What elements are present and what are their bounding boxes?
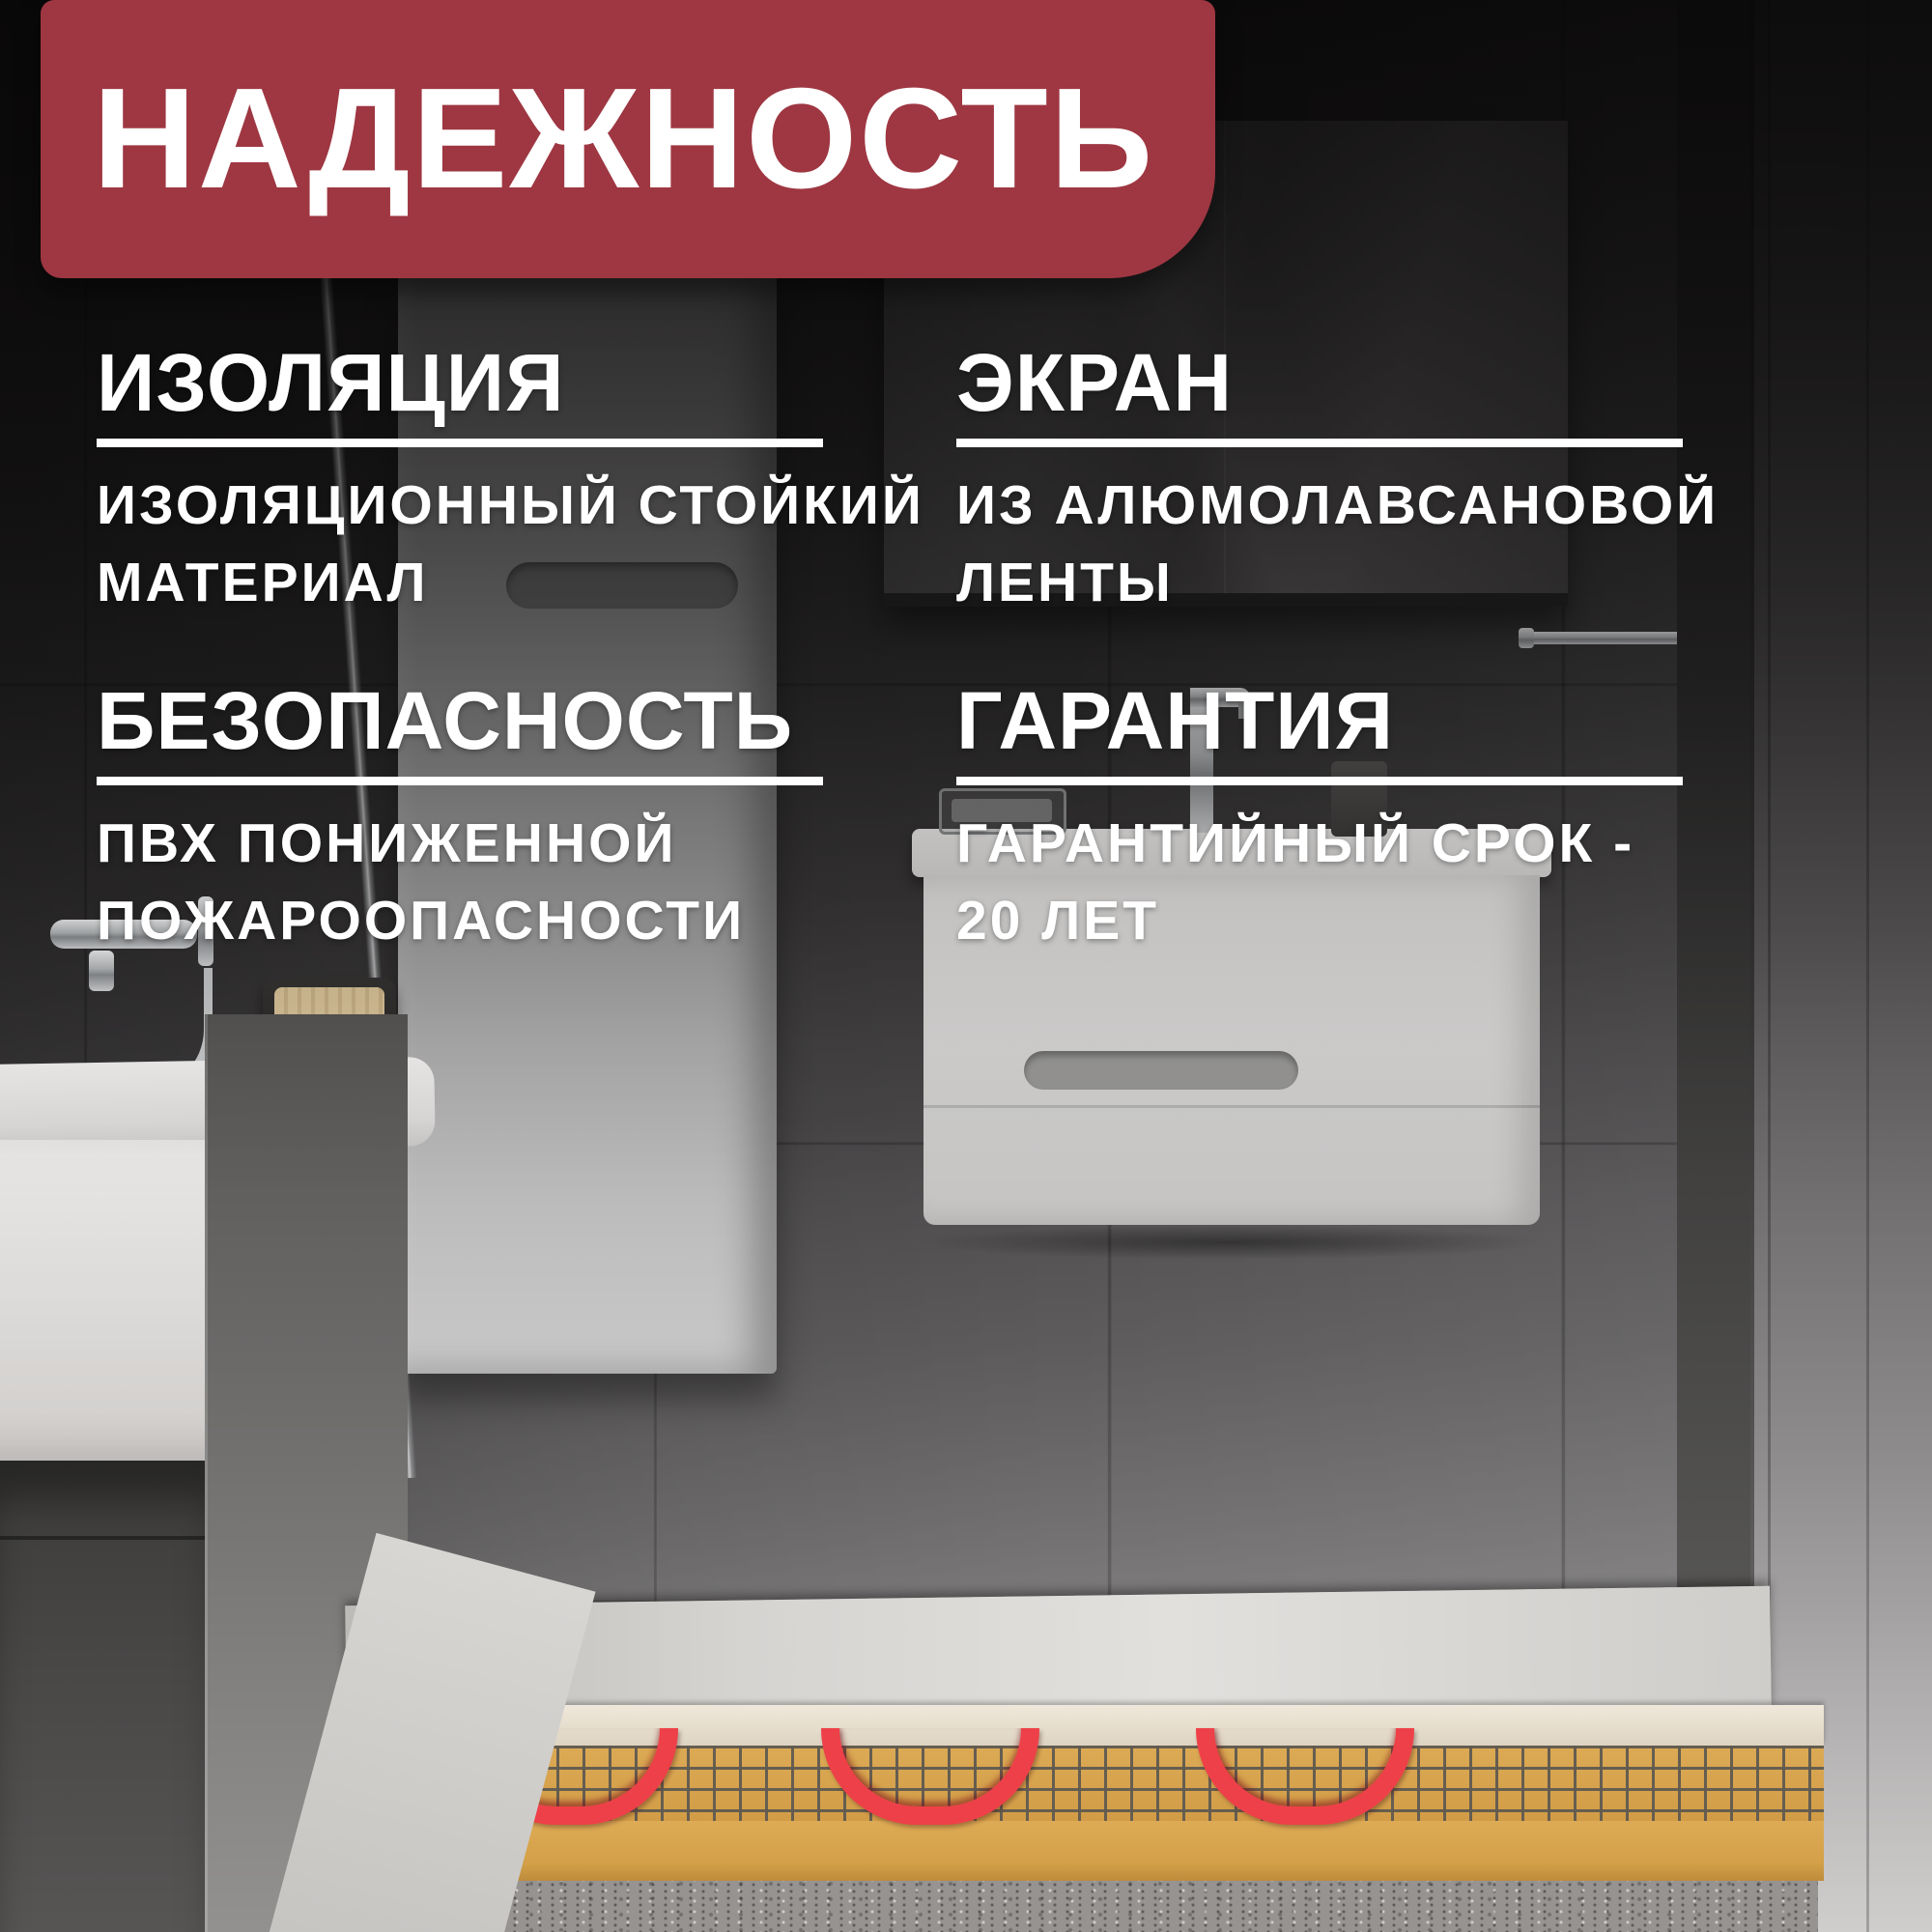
feature-description: ПВХ ПОНИЖЕННОЙ ПОЖАРООПАСНОСТИ: [97, 805, 937, 959]
feature-warranty: ГАРАНТИЯ ГАРАНТИЙНЫЙ СРОК - 20 ЛЕТ: [956, 678, 1797, 959]
feature-description-line: ЛЕНТЫ: [956, 544, 1797, 621]
heating-mat-cross-section: [452, 1705, 1824, 1881]
feature-underline: [956, 439, 1683, 447]
feature-title: ГАРАНТИЯ: [956, 678, 1797, 763]
feature-title: ЭКРАН: [956, 340, 1797, 425]
feature-description-line: ПОЖАРООПАСНОСТИ: [97, 882, 937, 959]
feature-description: ИЗОЛЯЦИОННЫЙ СТОЙКИЙ МАТЕРИАЛ: [97, 467, 937, 621]
feature-description: ГАРАНТИЙНЫЙ СРОК - 20 ЛЕТ: [956, 805, 1797, 959]
feature-underline: [97, 777, 823, 785]
promo-card: НАДЕЖНОСТЬ ИЗОЛЯЦИЯ ИЗОЛЯЦИОННЫЙ СТОЙКИЙ…: [0, 0, 1932, 1932]
feature-description-line: ГАРАНТИЙНЫЙ СРОК -: [956, 805, 1797, 882]
feature-shield: ЭКРАН ИЗ АЛЮМОЛАВСАНОВОЙ ЛЕНТЫ: [956, 340, 1797, 621]
banner-title: НАДЕЖНОСТЬ: [41, 0, 1215, 278]
feature-title: ИЗОЛЯЦИЯ: [97, 340, 937, 425]
concrete-subfloor-layer: [311, 1876, 1818, 1932]
feature-description-line: ПВХ ПОНИЖЕННОЙ: [97, 805, 937, 882]
feature-description-line: 20 ЛЕТ: [956, 882, 1797, 959]
title-banner: НАДЕЖНОСТЬ: [41, 0, 1215, 278]
feature-description: ИЗ АЛЮМОЛАВСАНОВОЙ ЛЕНТЫ: [956, 467, 1797, 621]
feature-description-line: МАТЕРИАЛ: [97, 544, 937, 621]
feature-description-line: ИЗ АЛЮМОЛАВСАНОВОЙ: [956, 467, 1797, 544]
feature-description-line: ИЗОЛЯЦИОННЫЙ СТОЙКИЙ: [97, 467, 937, 544]
feature-insulation: ИЗОЛЯЦИЯ ИЗОЛЯЦИОННЫЙ СТОЙКИЙ МАТЕРИАЛ: [97, 340, 937, 621]
feature-safety: БЕЗОПАСНОСТЬ ПВХ ПОНИЖЕННОЙ ПОЖАРООПАСНО…: [97, 678, 937, 959]
feature-title: БЕЗОПАСНОСТЬ: [97, 678, 937, 763]
feature-underline: [956, 777, 1683, 785]
feature-underline: [97, 439, 823, 447]
insulation-layer: [452, 1821, 1824, 1881]
